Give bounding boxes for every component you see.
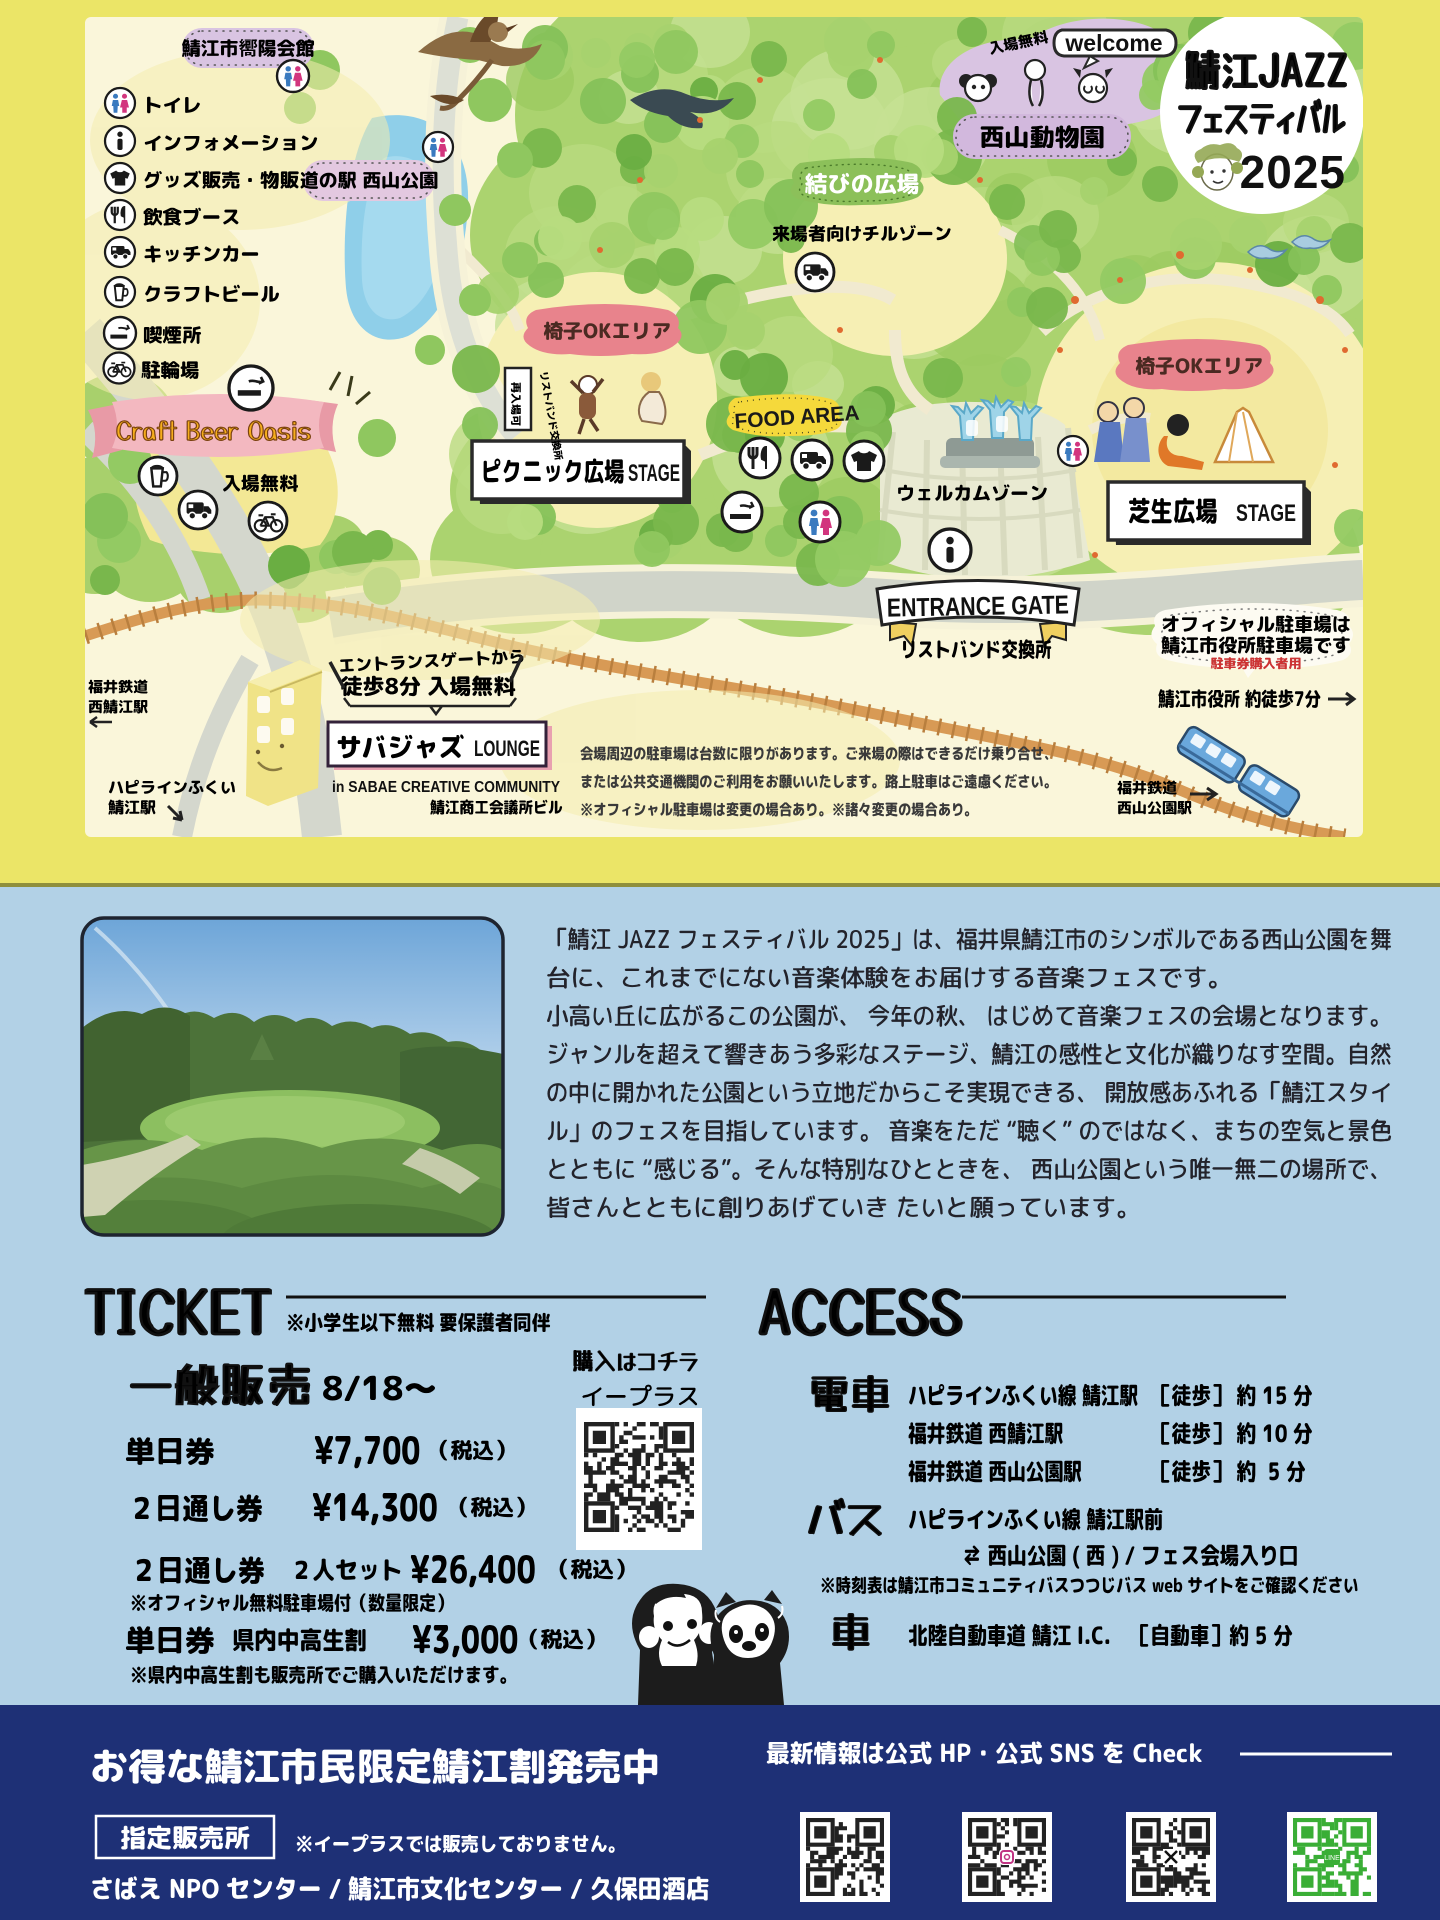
svg-text:LOUNGE: LOUNGE xyxy=(474,736,540,761)
svg-text:ENTRANCE GATE: ENTRANCE GATE xyxy=(887,589,1069,622)
svg-text:STAGE: STAGE xyxy=(1236,500,1296,527)
svg-text:welcome: welcome xyxy=(1064,30,1162,56)
svg-text:2025: 2025 xyxy=(1240,146,1346,198)
svg-text:in SABAE CREATIVE COMMUNITY: in SABAE CREATIVE COMMUNITY xyxy=(332,779,560,796)
svg-text:STAGE: STAGE xyxy=(628,460,680,487)
svg-text:LINE: LINE xyxy=(1324,1855,1340,1862)
